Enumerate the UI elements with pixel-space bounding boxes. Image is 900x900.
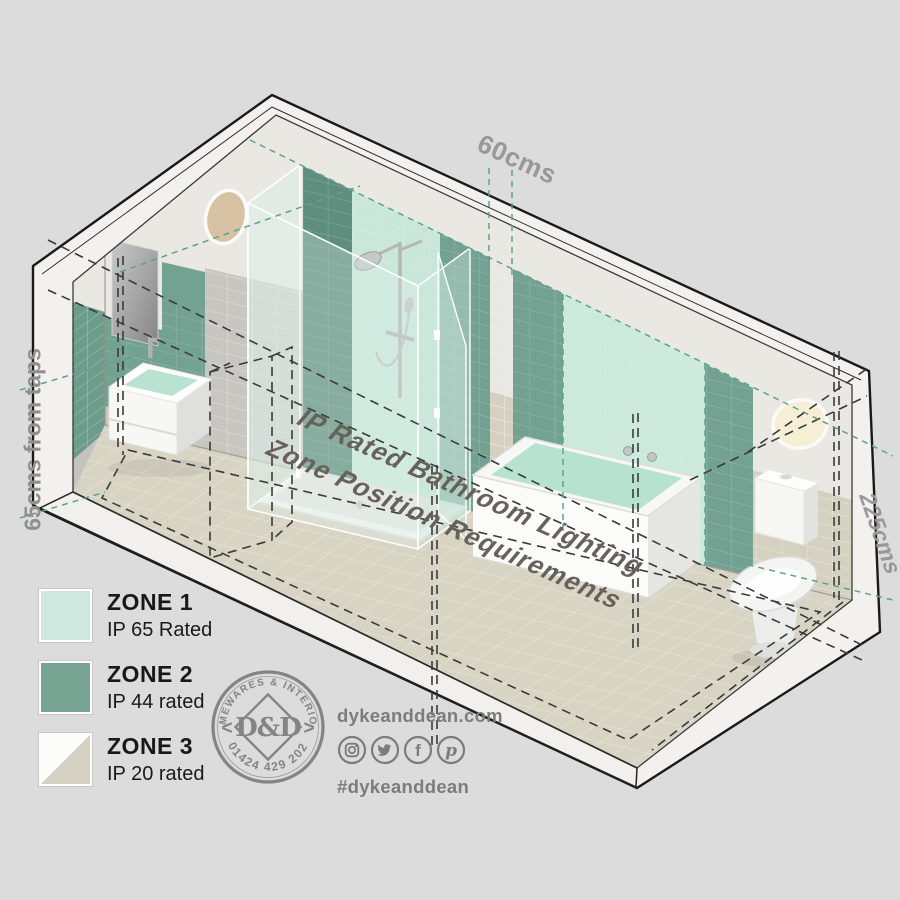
dyke-and-dean-logo: HOMEWARES & INTERIORS 01424 429 202 D&D … (207, 666, 329, 788)
zone3-rating: IP 20 rated (107, 763, 204, 786)
legend-row-zone3: ZONE 3 IP 20 rated (38, 732, 212, 787)
zone1-rating: IP 65 Rated (107, 619, 212, 642)
website-text: dykeanddean.com (337, 705, 503, 727)
dimension-65cms-from-taps: 65cms from taps (20, 335, 47, 545)
svg-text:01424 429 202: 01424 429 202 (225, 740, 311, 774)
legend-row-zone1: ZONE 1 IP 65 Rated (38, 588, 212, 643)
bath-tap (648, 453, 657, 462)
hashtag-text: #dykeanddean (337, 776, 503, 798)
zone2-rating: IP 44 rated (107, 691, 204, 714)
zone3-label: ZONE 3 (107, 733, 204, 760)
zone-legend: ZONE 1 IP 65 Rated ZONE 2 IP 44 rated (38, 588, 212, 787)
logo-chevron-left: < (221, 718, 232, 739)
twitter-icon (372, 737, 398, 763)
pinterest-icon: p (438, 737, 464, 763)
logo-chevron-right: > (303, 718, 314, 739)
facebook-icon: f (405, 737, 431, 763)
social-icons: f p (337, 735, 469, 765)
svg-text:f: f (415, 741, 421, 760)
poster: 60cms 65cms from taps 225cms IP Rated Ba… (0, 0, 900, 900)
logo-arc-bottom-text: 01424 429 202 (225, 740, 311, 774)
zone3-swatch (38, 732, 93, 787)
zone2-label: ZONE 2 (107, 661, 204, 688)
logo-monogram: D&D (235, 713, 301, 743)
flush-button (780, 475, 792, 480)
contact-block: dykeanddean.com f p #dykeanddean (337, 705, 503, 798)
zone1-label: ZONE 1 (107, 589, 212, 616)
legend-row-zone2: ZONE 2 IP 44 rated (38, 660, 212, 715)
bath-tap (624, 447, 633, 456)
zone2-swatch (38, 660, 93, 715)
svg-text:p: p (445, 741, 457, 761)
zone1-swatch (38, 588, 93, 643)
instagram-icon (339, 737, 365, 763)
